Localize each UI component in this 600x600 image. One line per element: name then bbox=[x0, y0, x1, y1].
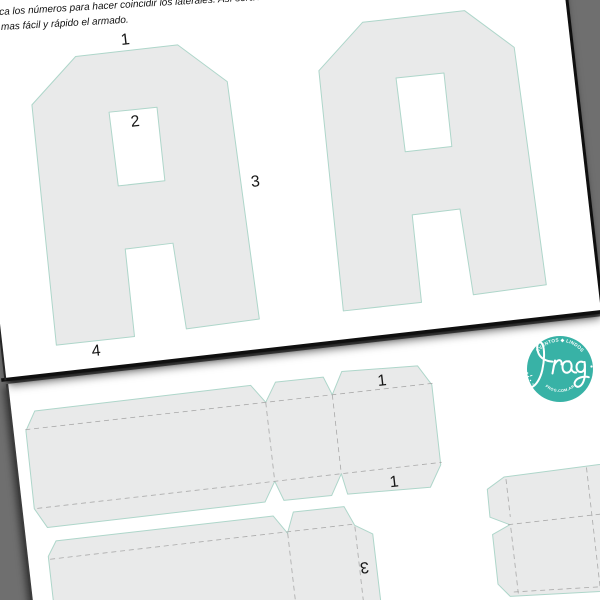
svg-text:3: 3 bbox=[250, 173, 261, 191]
svg-text:4: 4 bbox=[91, 342, 102, 360]
svg-text:1: 1 bbox=[120, 31, 131, 49]
